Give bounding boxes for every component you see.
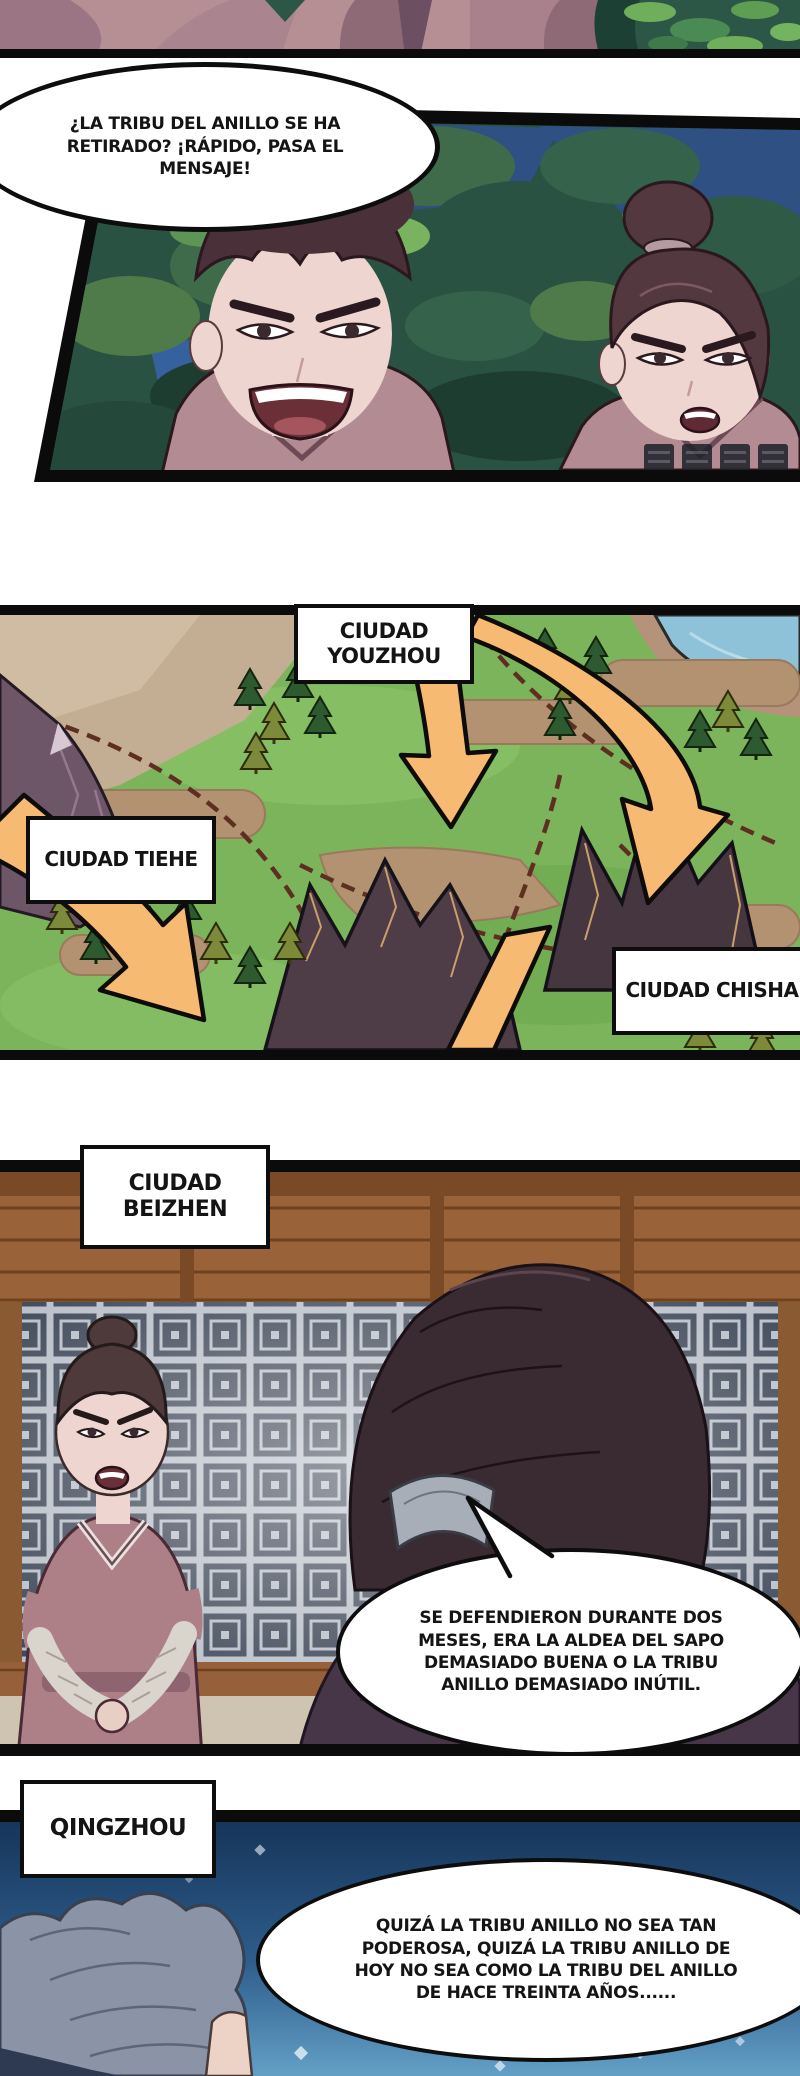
bubble-1-line: RETIRADO? ¡RÁPIDO, PASA EL bbox=[67, 136, 344, 158]
bubble-1-line: ¿LA TRIBU DEL ANILLO SE HA bbox=[70, 113, 340, 135]
map-label-ciudad-youzhou: CIUDAD YOUZHOU bbox=[294, 604, 474, 684]
map-label-ciudad-tiehe: CIUDAD TIEHE bbox=[26, 816, 216, 904]
bubble-2-line: ANILLO DEMASIADO INÚTIL. bbox=[441, 1674, 701, 1696]
map-label-ciudad-beizhen: CIUDAD BEIZHEN bbox=[80, 1145, 270, 1249]
label-line: CIUDAD bbox=[340, 619, 428, 644]
character-grey-hair bbox=[0, 1893, 252, 2076]
comic-page: , bbox=[0, 0, 800, 2076]
label-line: YOUZHOU bbox=[327, 644, 441, 669]
speech-bubble-2-tail bbox=[440, 1492, 580, 1592]
panel-1-border bbox=[0, 49, 800, 58]
map-label-qingzhou: QINGZHOU bbox=[20, 1780, 216, 1878]
map-label-ciudad-chisha: CIUDAD CHISHA bbox=[612, 947, 800, 1035]
label-line: QINGZHOU bbox=[50, 1815, 186, 1842]
bubble-1-line: MENSAJE! bbox=[159, 158, 250, 180]
bubble-2-line: SE DEFENDIERON DURANTE DOS bbox=[419, 1607, 722, 1629]
label-line: CIUDAD bbox=[129, 1171, 222, 1197]
bubble-3-line: HOY NO SEA COMO LA TRIBU DEL ANILLO bbox=[355, 1960, 738, 1982]
label-line: CIUDAD TIEHE bbox=[44, 848, 197, 872]
bubble-3-line: QUIZÁ LA TRIBU ANILLO NO SEA TAN bbox=[376, 1915, 716, 1937]
label-line: CIUDAD CHISHA bbox=[626, 979, 799, 1003]
bubble-3-line: DE HACE TREINTA AÑOS...... bbox=[416, 1982, 676, 2004]
bubble-3-line: PODEROSA, QUIZÁ LA TRIBU ANILLO DE bbox=[362, 1938, 731, 1960]
label-line: BEIZHEN bbox=[123, 1197, 227, 1223]
bubble-2-line: MESES, ERA LA ALDEA DEL SAPO bbox=[418, 1630, 724, 1652]
bubble-2-line: DEMASIADO BUENA O LA TRIBU bbox=[424, 1652, 718, 1674]
